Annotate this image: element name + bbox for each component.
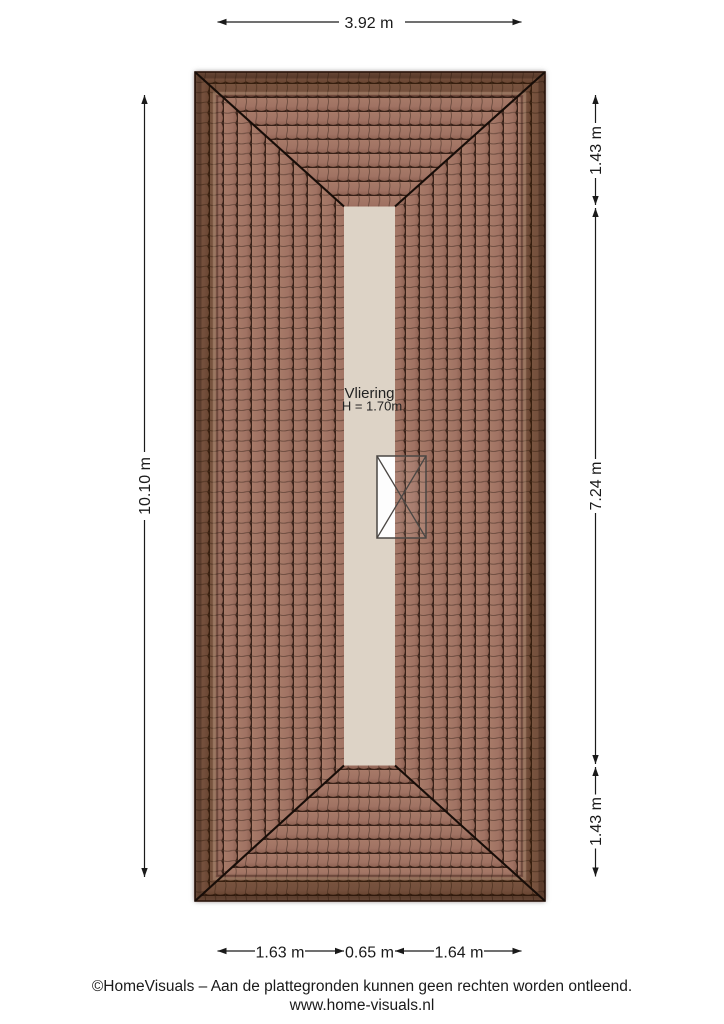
svg-text:0.65 m: 0.65 m bbox=[345, 945, 394, 962]
svg-text:3.92 m: 3.92 m bbox=[345, 15, 394, 32]
svg-text:10.10 m: 10.10 m bbox=[137, 457, 154, 515]
svg-text:1.64 m: 1.64 m bbox=[435, 945, 484, 962]
svg-text:H = 1.70m: H = 1.70m bbox=[342, 399, 402, 414]
svg-text:©HomeVisuals – Aan de plattegr: ©HomeVisuals – Aan de plattegronden kunn… bbox=[92, 978, 632, 995]
svg-text:1.63 m: 1.63 m bbox=[256, 945, 305, 962]
svg-text:1.43 m: 1.43 m bbox=[588, 797, 605, 846]
svg-text:1.43 m: 1.43 m bbox=[588, 126, 605, 175]
svg-text:www.home-visuals.nl: www.home-visuals.nl bbox=[289, 997, 435, 1014]
svg-text:7.24 m: 7.24 m bbox=[588, 462, 605, 511]
